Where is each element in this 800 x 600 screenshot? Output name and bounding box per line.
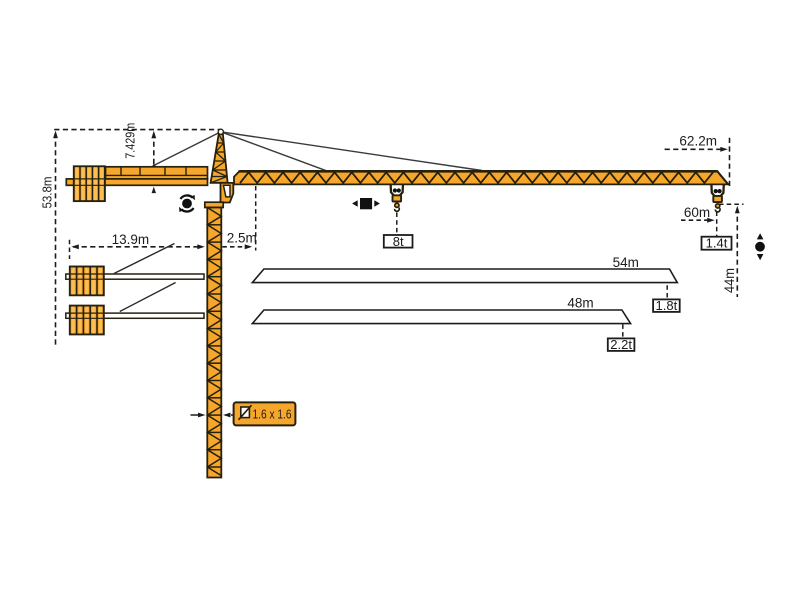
svg-text:44m: 44m: [722, 268, 737, 293]
svg-text:53.8m: 53.8m: [40, 177, 55, 209]
svg-text:7.429m: 7.429m: [123, 123, 138, 159]
svg-text:1.8t: 1.8t: [656, 298, 678, 313]
svg-text:48m: 48m: [567, 296, 593, 311]
svg-text:62.2m: 62.2m: [679, 134, 717, 149]
svg-text:13.9m: 13.9m: [112, 232, 150, 247]
svg-text:2.5m: 2.5m: [227, 230, 257, 245]
svg-text:2.2t: 2.2t: [610, 337, 632, 352]
svg-text:1.4t: 1.4t: [706, 236, 728, 251]
svg-text:8t: 8t: [393, 234, 404, 249]
svg-text:54m: 54m: [613, 255, 639, 270]
svg-text:1.6 x 1.6: 1.6 x 1.6: [253, 407, 292, 421]
svg-text:60m: 60m: [684, 205, 710, 220]
